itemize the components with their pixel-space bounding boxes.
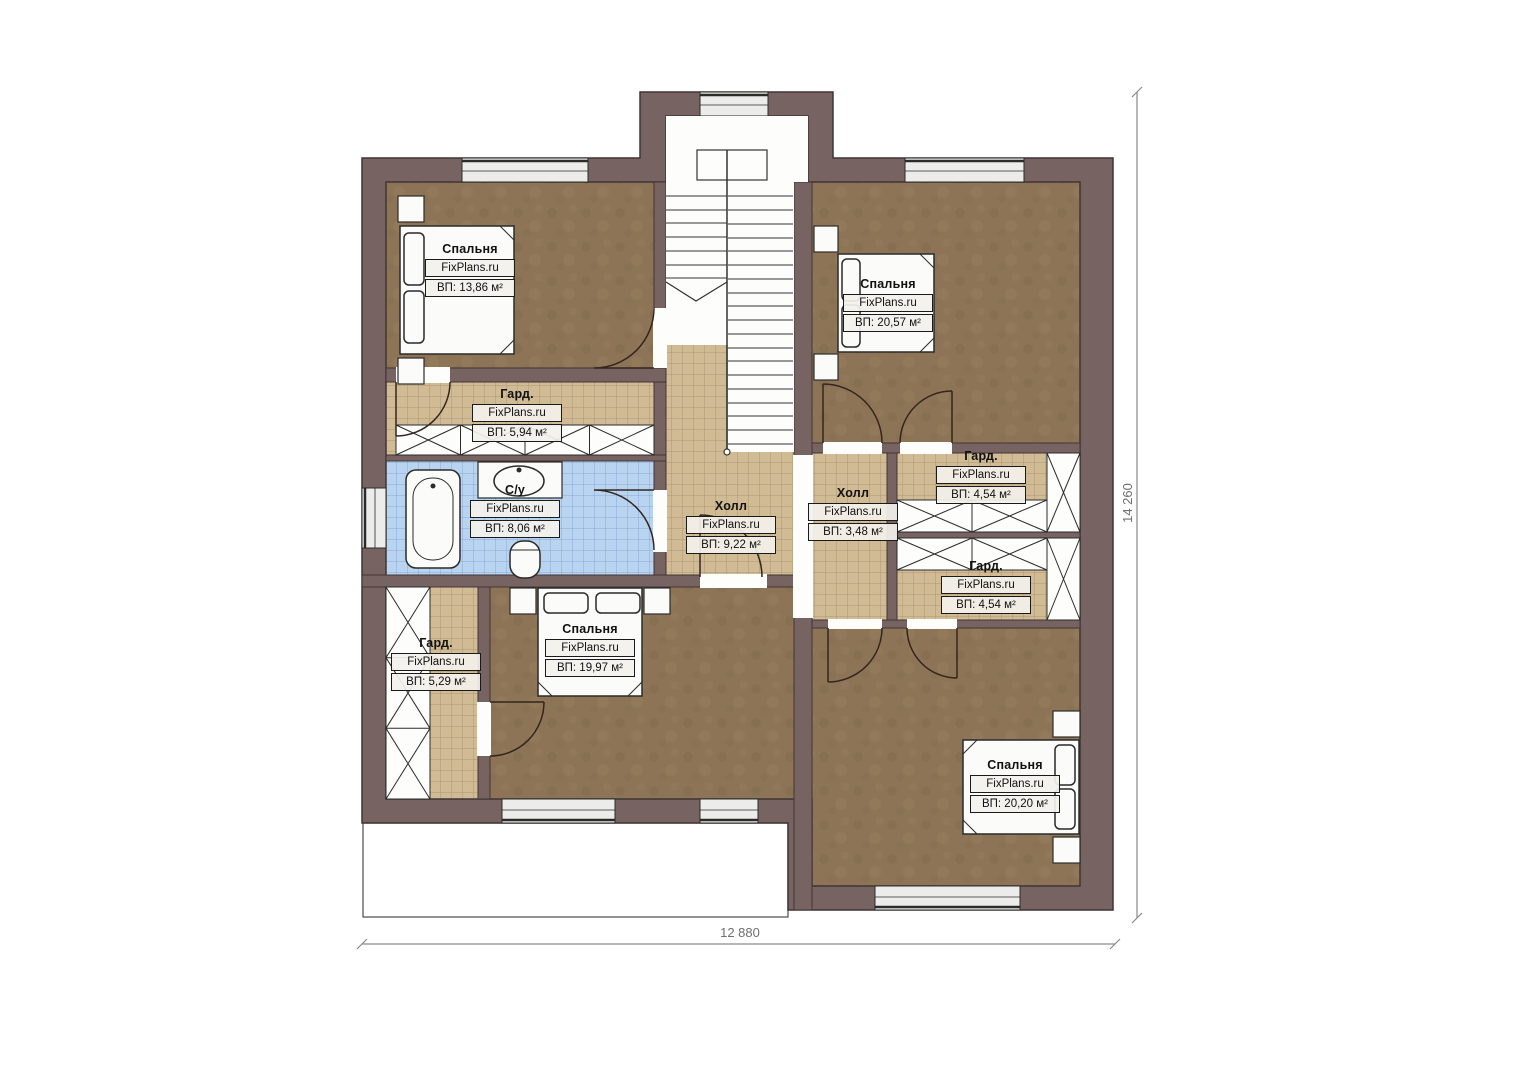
brand-label: FixPlans.ru [391,653,481,671]
floor-plan-page: Спальня FixPlans.ru ВП: 13,86 м² Спальня… [0,0,1528,1080]
dimension-width: 12 880 [700,925,780,940]
room-name: Спальня [970,758,1060,773]
toilet [510,541,540,578]
room-name: Гард. [391,636,481,651]
room-area: ВП: 8,06 м² [470,520,560,538]
bathtub [406,470,460,568]
room-label-wardrobe-right-lower: Гард. FixPlans.ru ВП: 4,54 м² [941,559,1031,614]
opening-bathroom [653,490,667,552]
room-label-wardrobe-left: Гард. FixPlans.ru ВП: 5,94 м² [472,387,562,442]
brand-label: FixPlans.ru [470,500,560,518]
opening-bedroomBR-wardrobe [907,619,957,629]
opening-bedroomTL [653,308,667,368]
room-label-bathroom: С/у FixPlans.ru ВП: 8,06 м² [470,483,560,538]
room-name: Спальня [425,242,515,257]
room-area: ВП: 3,48 м² [808,523,898,541]
room-label-bedroom-bottom-middle: Спальня FixPlans.ru ВП: 19,97 м² [545,622,635,677]
room-name: Холл [686,499,776,514]
wall-between-wardrobes [897,532,1080,538]
stair-stringer-end [724,449,730,455]
opening-bedroomBM [700,574,767,588]
room-area: ВП: 13,86 м² [425,279,515,297]
window-top-left [462,158,588,182]
window-bottom-left-1 [502,799,615,823]
opening-bedroomTR-hall [823,442,882,454]
brand-label: FixPlans.ru [936,466,1026,484]
room-name: Гард. [936,449,1026,464]
brand-label: FixPlans.ru [686,516,776,534]
brand-label: FixPlans.ru [970,775,1060,793]
window-bottom-left-2 [700,799,758,823]
brand-label: FixPlans.ru [808,503,898,521]
stairwell-main [666,182,794,345]
room-label-hall-right: Холл FixPlans.ru ВП: 3,48 м² [808,486,898,541]
window-stairwell [700,92,768,116]
wall-wardrobe-bath [386,455,666,461]
room-label-hall-center: Холл FixPlans.ru ВП: 9,22 м² [686,499,776,554]
room-area: ВП: 4,54 м² [941,596,1031,614]
room-label-wardrobe-right-upper: Гард. FixPlans.ru ВП: 4,54 м² [936,449,1026,504]
room-label-bedroom-top-left: Спальня FixPlans.ru ВП: 13,86 м² [425,242,515,297]
dimension-height: 14 260 [1120,471,1136,535]
window-bathroom [362,488,386,548]
opening-wardrobeBL [477,702,491,756]
floor-wardrobe-bottom-left [430,587,478,799]
terrace-outline [363,823,788,917]
room-name: Гард. [941,559,1031,574]
room-label-wardrobe-bottom-left: Гард. FixPlans.ru ВП: 5,29 м² [391,636,481,691]
room-name: Гард. [472,387,562,402]
room-label-bedroom-top-right: Спальня FixPlans.ru ВП: 20,57 м² [843,277,933,332]
room-area: ВП: 19,97 м² [545,659,635,677]
window-top-right [905,158,1024,182]
room-area: ВП: 20,57 м² [843,314,933,332]
room-area: ВП: 20,20 м² [970,795,1060,813]
room-area: ВП: 4,54 м² [936,486,1026,504]
wall-wardrobeBL-bedroom [478,587,490,799]
room-name: С/у [470,483,560,498]
room-area: ВП: 5,94 м² [472,424,562,442]
shelf-wardrobe-bottom-left [386,587,430,799]
brand-label: FixPlans.ru [941,576,1031,594]
room-name: Спальня [843,277,933,292]
brand-label: FixPlans.ru [843,294,933,312]
room-name: Холл [808,486,898,501]
brand-label: FixPlans.ru [545,639,635,657]
brand-label: FixPlans.ru [472,404,562,422]
window-bottom-right [875,886,1020,910]
brand-label: FixPlans.ru [425,259,515,277]
room-area: ВП: 5,29 м² [391,673,481,691]
room-area: ВП: 9,22 м² [686,536,776,554]
room-name: Спальня [545,622,635,637]
stairwell-upper [666,116,808,182]
room-label-bedroom-bottom-right: Спальня FixPlans.ru ВП: 20,20 м² [970,758,1060,813]
opening-bedroomBR-hall [828,619,882,629]
